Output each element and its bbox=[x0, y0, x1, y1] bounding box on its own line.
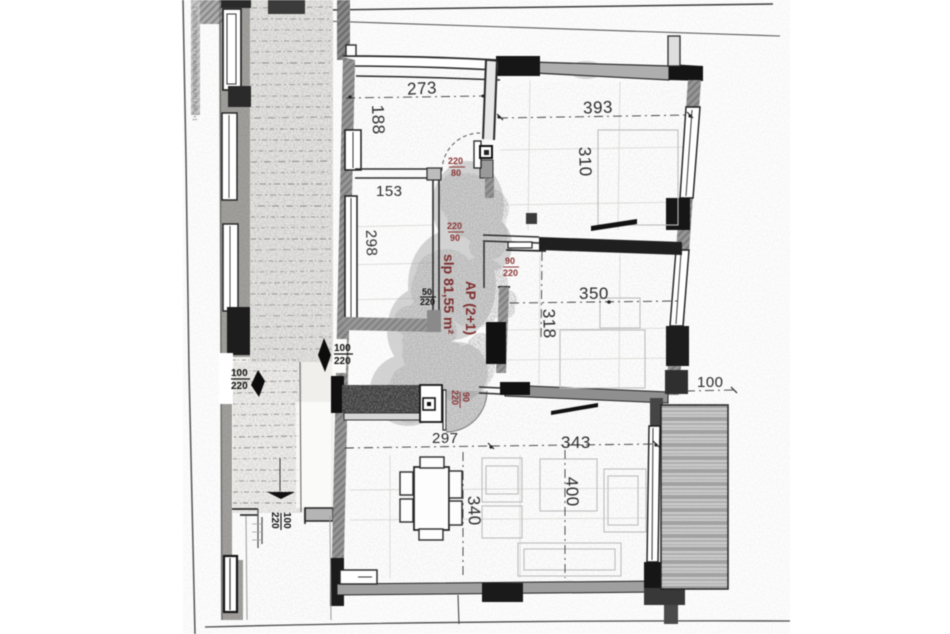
svg-text:100: 100 bbox=[281, 512, 292, 529]
svg-text:298: 298 bbox=[362, 230, 380, 257]
svg-text:100: 100 bbox=[697, 374, 724, 391]
svg-text:AP (2+1): AP (2+1) bbox=[463, 281, 478, 335]
svg-text:153: 153 bbox=[376, 183, 403, 200]
svg-text:100: 100 bbox=[334, 343, 351, 354]
svg-text:220: 220 bbox=[503, 268, 518, 278]
svg-text:50: 50 bbox=[422, 287, 432, 297]
svg-text:100: 100 bbox=[231, 368, 248, 379]
svg-text:273: 273 bbox=[407, 78, 438, 99]
svg-text:220: 220 bbox=[448, 156, 463, 166]
svg-text:400: 400 bbox=[562, 476, 582, 507]
svg-text:340: 340 bbox=[464, 495, 484, 526]
svg-text:90: 90 bbox=[461, 392, 471, 402]
svg-text:188: 188 bbox=[368, 104, 388, 135]
svg-text:220: 220 bbox=[231, 381, 248, 392]
svg-text:220: 220 bbox=[269, 512, 280, 529]
svg-text:350: 350 bbox=[579, 284, 609, 303]
svg-text:220: 220 bbox=[447, 221, 462, 231]
svg-text:393: 393 bbox=[583, 98, 614, 118]
svg-text:297: 297 bbox=[432, 430, 459, 447]
svg-text:220: 220 bbox=[420, 297, 435, 307]
svg-text:80: 80 bbox=[451, 168, 461, 178]
svg-text:90: 90 bbox=[450, 233, 460, 243]
svg-text:slp 81,55 m²: slp 81,55 m² bbox=[441, 254, 457, 334]
svg-text:318: 318 bbox=[539, 308, 559, 339]
svg-text:343: 343 bbox=[561, 433, 591, 452]
svg-text:90: 90 bbox=[505, 256, 515, 266]
svg-text:310: 310 bbox=[575, 146, 595, 177]
svg-text:220: 220 bbox=[450, 390, 460, 405]
svg-text:220: 220 bbox=[334, 356, 351, 367]
